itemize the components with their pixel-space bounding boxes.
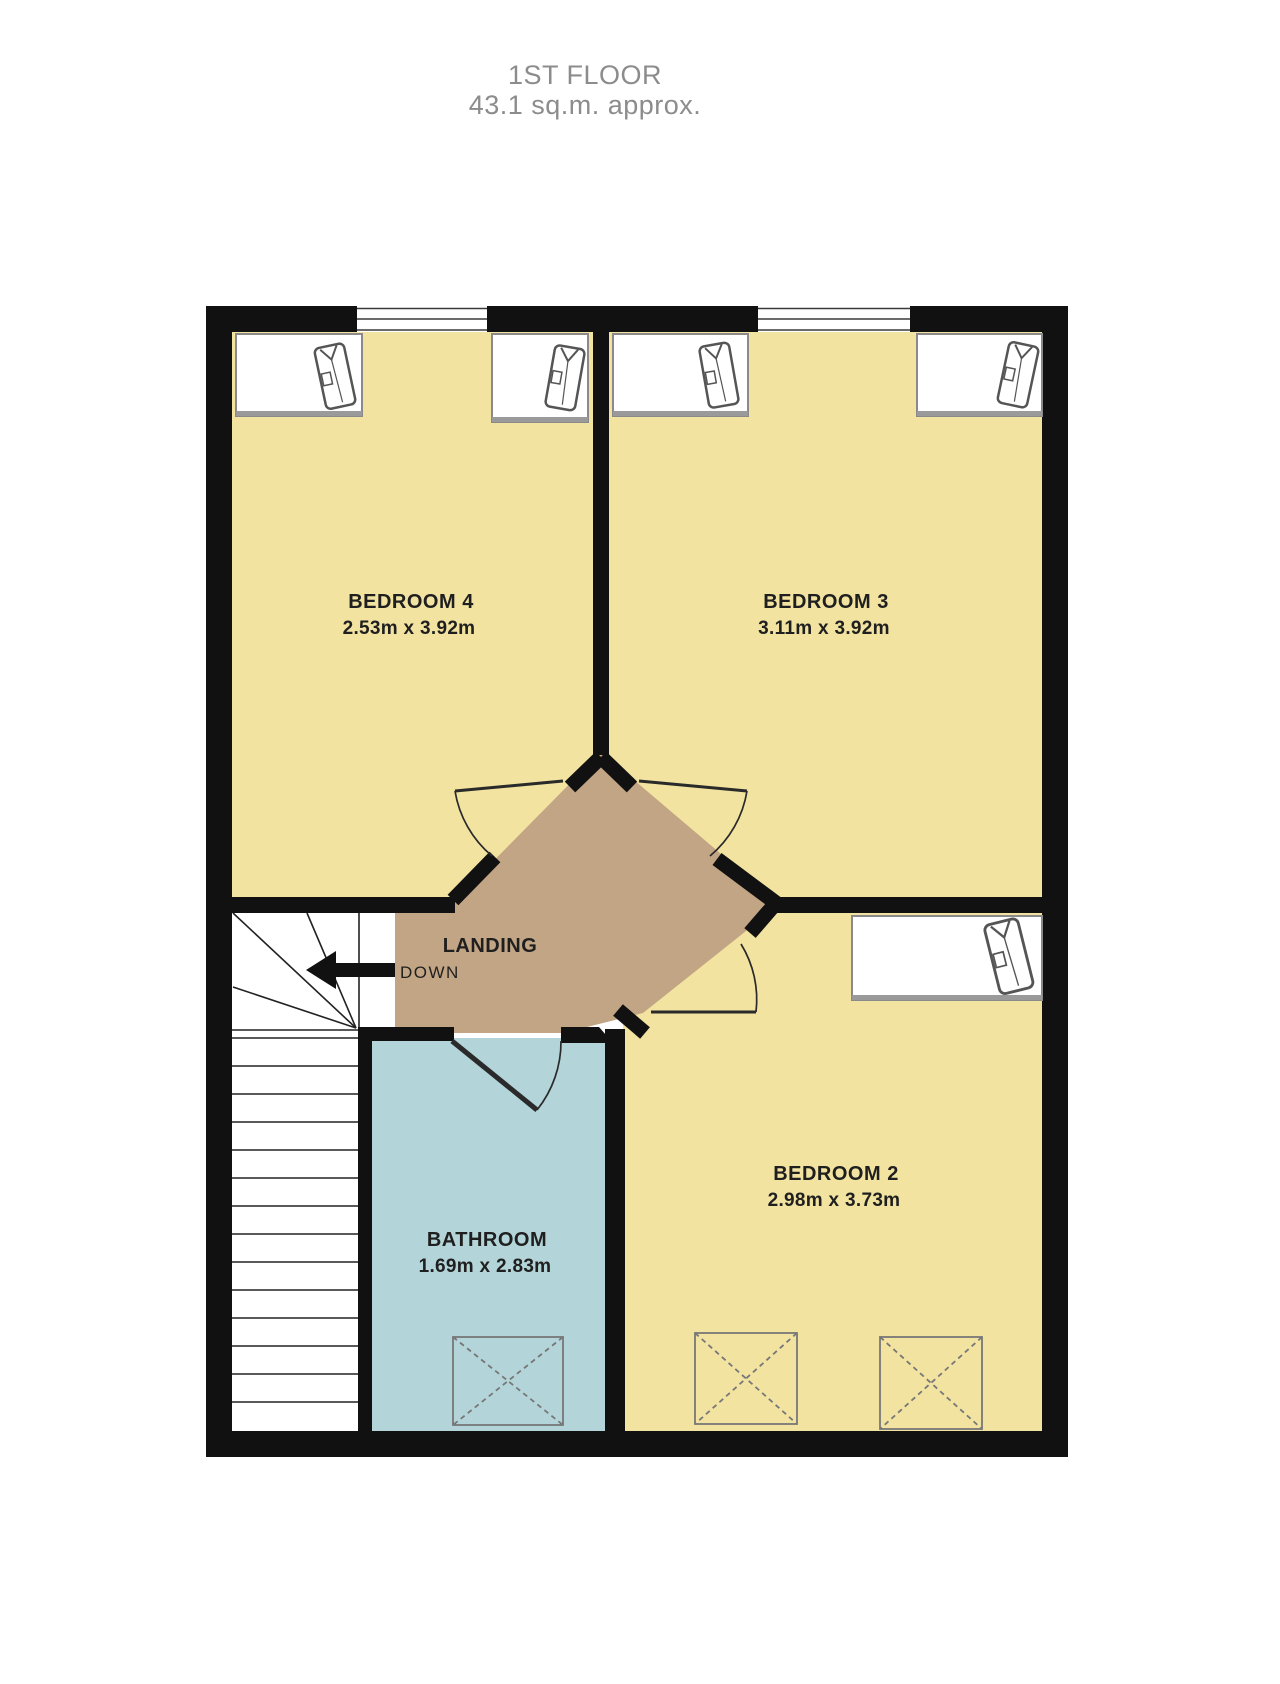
bedroom-2-dimensions: 2.98m x 3.73m bbox=[768, 1190, 901, 1211]
wall-bedroom3-bedroom2 bbox=[775, 897, 1042, 913]
wall-bedroom4-bedroom3 bbox=[593, 328, 609, 755]
bedroom-4-label: BEDROOM 4 bbox=[348, 591, 474, 613]
window-bedroom4 bbox=[357, 306, 487, 332]
bedroom-3-label: BEDROOM 3 bbox=[763, 591, 889, 613]
bedroom-3-dimensions: 3.11m x 3.92m bbox=[758, 618, 890, 639]
bedroom-2-label: BEDROOM 2 bbox=[773, 1163, 899, 1185]
plan-title: 1ST FLOOR bbox=[508, 60, 662, 90]
wall-stairs-bathroom bbox=[358, 1029, 372, 1433]
wall-bathroom-top-left bbox=[358, 1027, 454, 1041]
wardrobe-bedroom4-right bbox=[492, 334, 588, 422]
wall-right bbox=[1042, 306, 1068, 1457]
wardrobe-bedroom3-right bbox=[917, 334, 1042, 416]
wall-left bbox=[206, 306, 232, 1457]
wardrobe-bedroom4-left bbox=[236, 334, 362, 416]
plan-area-subtitle: 43.1 sq.m. approx. bbox=[469, 90, 702, 120]
wall-bedroom4-stairs bbox=[230, 897, 455, 913]
wall-top bbox=[206, 306, 1068, 332]
wall-bathroom-bedroom2 bbox=[605, 1029, 625, 1433]
stairs-down-label: DOWN bbox=[400, 963, 460, 982]
landing-label: LANDING bbox=[443, 935, 538, 957]
bathroom-dimensions: 1.69m x 2.83m bbox=[419, 1256, 552, 1277]
window-bedroom3 bbox=[758, 306, 910, 332]
bedroom-4-dimensions: 2.53m x 3.92m bbox=[343, 618, 476, 639]
floor-plan-page: 1ST FLOOR 43.1 sq.m. approx. bbox=[0, 0, 1280, 1684]
wall-bottom bbox=[206, 1431, 1068, 1457]
wardrobe-bedroom3-left bbox=[613, 334, 748, 416]
floor-plan-drawing: 1ST FLOOR 43.1 sq.m. approx. bbox=[0, 0, 1280, 1684]
wardrobe-bedroom2 bbox=[852, 916, 1042, 1000]
bathroom-label: BATHROOM bbox=[427, 1229, 547, 1251]
